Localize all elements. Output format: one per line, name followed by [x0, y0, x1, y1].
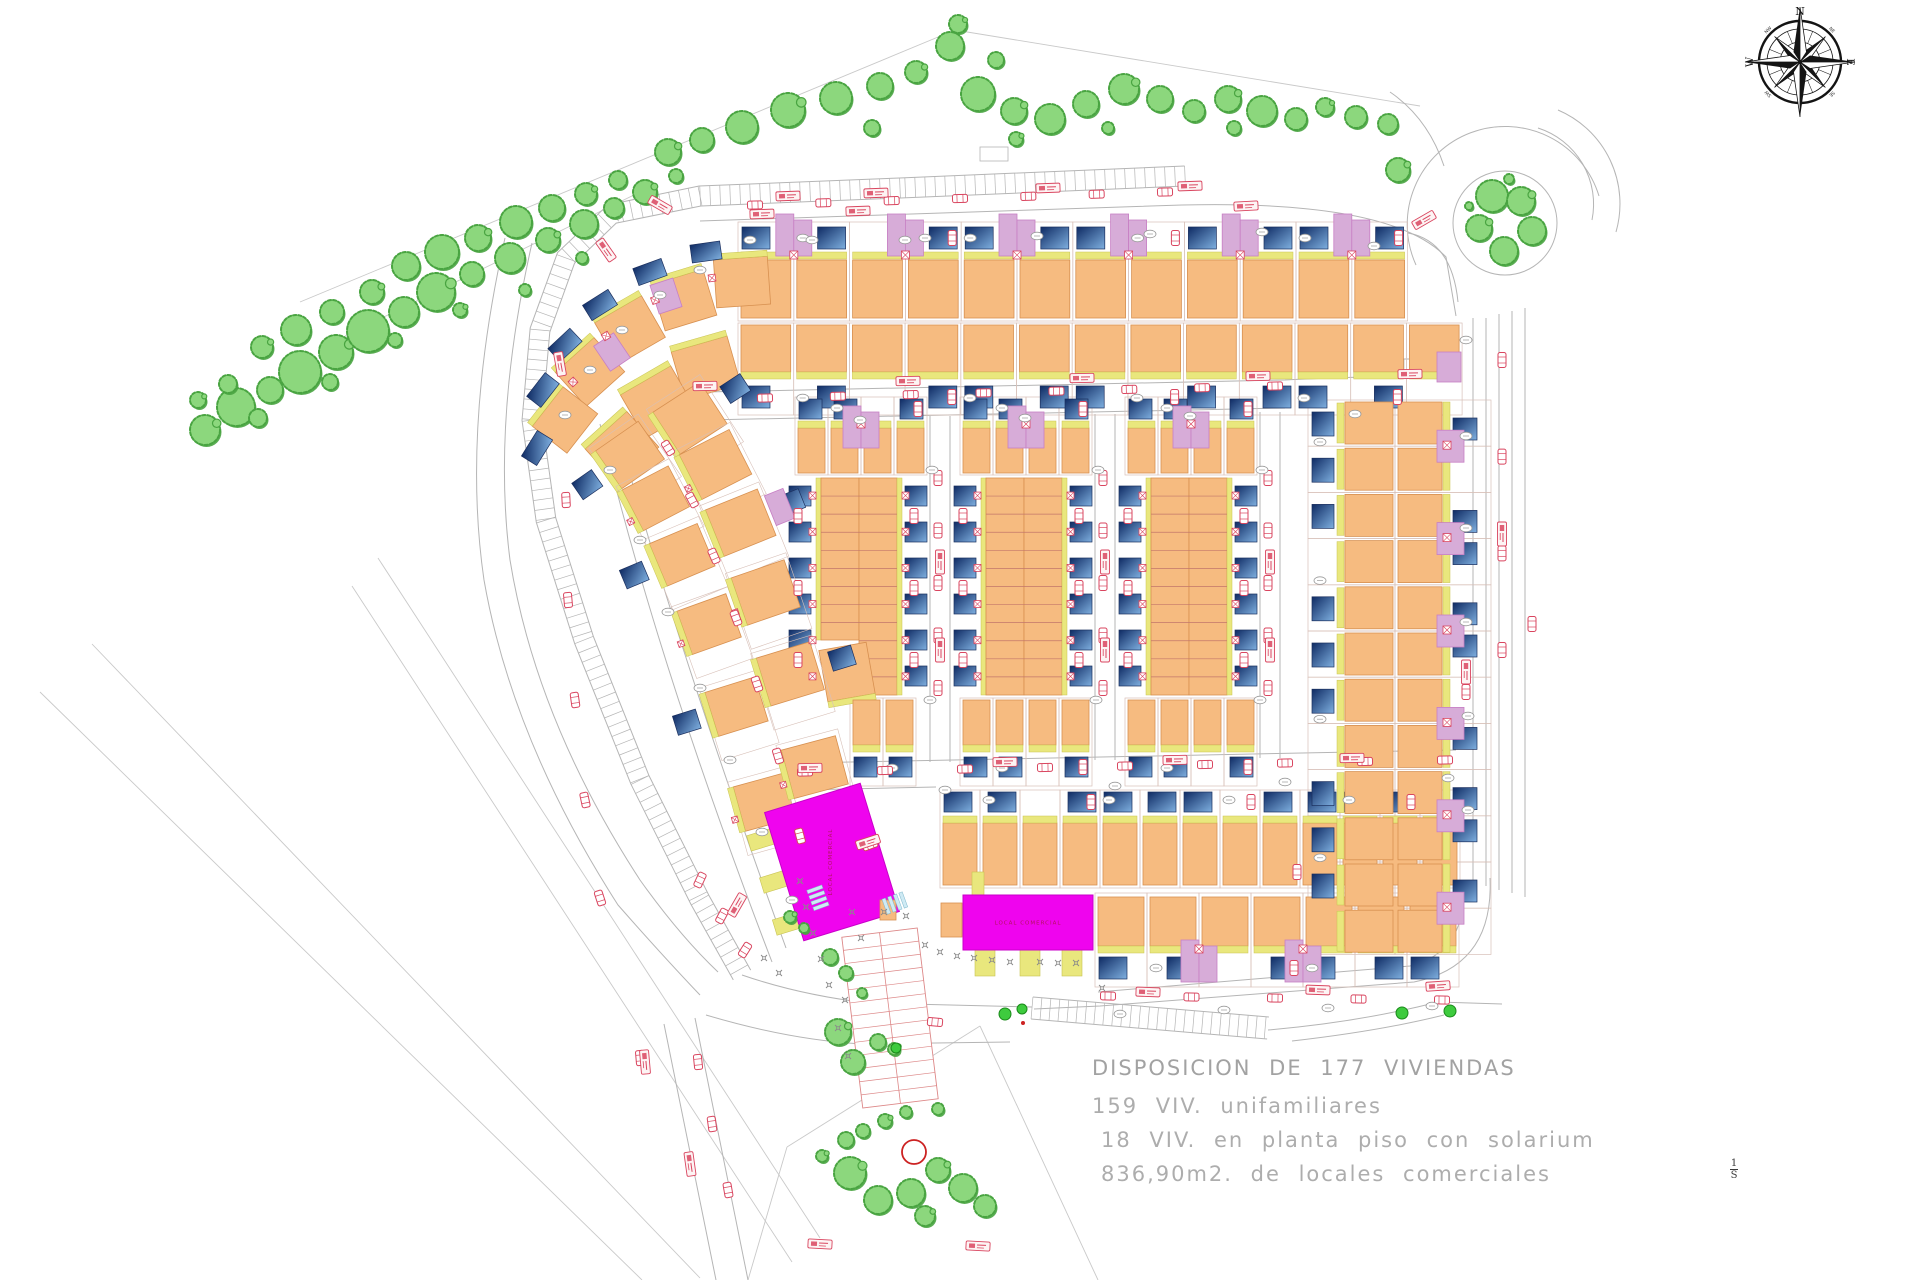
street-name-badge [1163, 755, 1187, 764]
plot-number-bubble [1019, 414, 1031, 422]
plot-number-bubble [1150, 964, 1162, 972]
plot-number-bubble [1343, 796, 1355, 804]
plot-number-bubble [919, 234, 931, 242]
commercial-label-2: LOCAL COMERCIAL [995, 921, 1062, 927]
buildings-layer: LOCAL COMERCIALLOCAL COMERCIAL [521, 214, 1477, 982]
plot-number-bubble [1442, 774, 1454, 782]
plot-number-bubble [899, 236, 911, 244]
street-name-badge [1070, 373, 1094, 382]
plot-number-bubble [1368, 242, 1380, 250]
street-name-badge [1246, 371, 1270, 380]
plot-number-bubble [1256, 228, 1268, 236]
title-line-1: DISPOSICION DE 177 VIVIENDAS [1092, 1056, 1516, 1080]
plot-number-bubble [1314, 715, 1326, 723]
street-name-badge [1462, 660, 1471, 684]
street-name-badge [966, 1241, 990, 1251]
plot-number-bubble [1306, 964, 1318, 972]
plot-number-bubble [1279, 778, 1291, 786]
plot-number-bubble [797, 394, 809, 402]
plot-number-bubble [1460, 336, 1472, 344]
plot-number-bubble [634, 536, 646, 544]
streetlight-icon [922, 942, 928, 948]
street-name-badge [798, 763, 822, 772]
title-line-3: 18 VIV. en planta piso con solarium [1101, 1128, 1595, 1152]
plot-number-bubble [1161, 764, 1173, 772]
street-name-badge [750, 209, 774, 219]
plot-number-bubble [831, 404, 843, 412]
plot-number-bubble [616, 326, 628, 334]
plot-number-bubble [939, 786, 951, 794]
title-line-4: 836,90m2. de locales comerciales [1101, 1162, 1551, 1186]
plot-number-bubble [1460, 524, 1472, 532]
plot-number-bubble [1184, 412, 1196, 420]
plot-number-bubble [694, 684, 706, 692]
street-name-badge [846, 206, 870, 216]
plot-number-bubble [654, 291, 666, 299]
title-line-2: 159 VIV. unifamiliares [1092, 1094, 1382, 1118]
plot-number-bubble [584, 366, 596, 374]
plot-number-bubble [964, 394, 976, 402]
plot-number-bubble [559, 411, 571, 419]
site-plan-drawing: LOCAL COMERCIALLOCAL COMERCIALNEWNESESWN… [0, 0, 1920, 1280]
plot-number-bubble [1298, 394, 1310, 402]
streetlight-icon [1099, 985, 1105, 991]
plot-number-bubble [1299, 234, 1311, 242]
plot-number-bubble [1161, 404, 1173, 412]
street-name-badge [936, 550, 945, 574]
plot-number-bubble [1092, 466, 1104, 474]
streetlight-icon [1007, 959, 1013, 965]
svg-text:N: N [1795, 5, 1805, 18]
street-name-badge [993, 757, 1017, 766]
plot-number-bubble [786, 896, 798, 904]
plot-number-bubble [1132, 234, 1144, 242]
plot-number-bubble [1218, 1006, 1230, 1014]
streetlight-icon [937, 949, 943, 955]
streetlight-icon [826, 982, 832, 988]
plot-number-bubble [744, 236, 756, 244]
plot-number-bubble [1462, 712, 1474, 720]
plot-number-bubble [1426, 1002, 1438, 1010]
commercial-block-2: LOCAL COMERCIAL [941, 872, 1093, 976]
plot-number-bubble [1460, 432, 1472, 440]
plot-number-bubble [1314, 854, 1326, 862]
plot-number-bubble [964, 234, 976, 242]
scale-note-numerator: 1 [1724, 1158, 1744, 1169]
plot-number-bubble [1114, 1010, 1126, 1018]
street-name-badge [1426, 981, 1451, 992]
street-name-badge [896, 376, 920, 385]
street-name-badge [776, 191, 800, 201]
plot-number-bubble [1223, 796, 1235, 804]
plot-number-bubble [1322, 1004, 1334, 1012]
scale-note-denominator: S [1724, 1170, 1744, 1181]
streetlight-icon [954, 953, 960, 959]
plot-number-bubble [1254, 696, 1266, 704]
street-name-badge [595, 238, 616, 263]
street-name-badge [1136, 987, 1160, 997]
street-name-badge [1498, 522, 1507, 546]
street-name-badge [1178, 181, 1202, 191]
street-name-badge [808, 1239, 832, 1249]
street-name-badge [1411, 210, 1436, 230]
plot-number-bubble [756, 828, 768, 836]
annotations-layer: NEWNESESWNW [1745, 5, 1855, 117]
scale-note: 1 S [1724, 1158, 1744, 1181]
street-name-badge [1036, 183, 1060, 193]
plot-number-bubble [1131, 394, 1143, 402]
plot-number-bubble [694, 266, 706, 274]
street-name-badge [1101, 550, 1110, 574]
street-name-badge [647, 195, 672, 215]
plot-number-bubble [924, 696, 936, 704]
street-name-badge [693, 381, 717, 390]
street-name-badge [639, 1050, 650, 1075]
streetlight-icon [903, 913, 909, 919]
street-name-badge [936, 638, 945, 662]
plot-number-bubble [1349, 410, 1361, 418]
street-name-badge [1306, 985, 1330, 995]
street-name-badge [1266, 638, 1275, 662]
commercial-label-1: LOCAL COMERCIAL [828, 829, 834, 896]
plot-number-bubble [983, 796, 995, 804]
plot-number-bubble [1109, 782, 1121, 790]
plot-number-bubble [926, 466, 938, 474]
street-name-badge [1398, 369, 1422, 378]
street-name-badge [1340, 753, 1364, 762]
plot-number-bubble [806, 236, 818, 244]
site-plan-page: LOCAL COMERCIALLOCAL COMERCIALNEWNESESWN… [0, 0, 1920, 1280]
street-name-badge [684, 1151, 696, 1176]
plot-number-bubble [662, 608, 674, 616]
plot-number-bubble [1314, 438, 1326, 446]
street-name-badge [1266, 550, 1275, 574]
plot-number-bubble [1460, 618, 1472, 626]
svg-text:W: W [1745, 56, 1756, 67]
plot-number-bubble [854, 416, 866, 424]
street-name-badge [1234, 201, 1258, 211]
plot-number-bubble [1314, 577, 1326, 585]
street-name-badge [727, 892, 747, 917]
streetlight-icon [761, 955, 767, 961]
street-name-badge [1101, 638, 1110, 662]
svg-text:E: E [1844, 58, 1855, 65]
plot-number-bubble [1462, 806, 1474, 814]
streetlight-icon [1055, 960, 1061, 966]
plot-number-bubble [604, 466, 616, 474]
street-name-badge [864, 188, 888, 198]
plot-number-bubble [1256, 466, 1268, 474]
compass-rose-icon: NEWNESESWNW [1745, 5, 1855, 117]
streetlight-icon [776, 970, 782, 976]
parking-grid [842, 928, 938, 1108]
plot-number-bubble [1031, 232, 1043, 240]
plot-number-bubble [1090, 696, 1102, 704]
plot-number-bubble [996, 404, 1008, 412]
plot-number-bubble [1144, 230, 1156, 238]
plot-number-bubble [724, 756, 736, 764]
plot-number-bubble [1103, 796, 1115, 804]
